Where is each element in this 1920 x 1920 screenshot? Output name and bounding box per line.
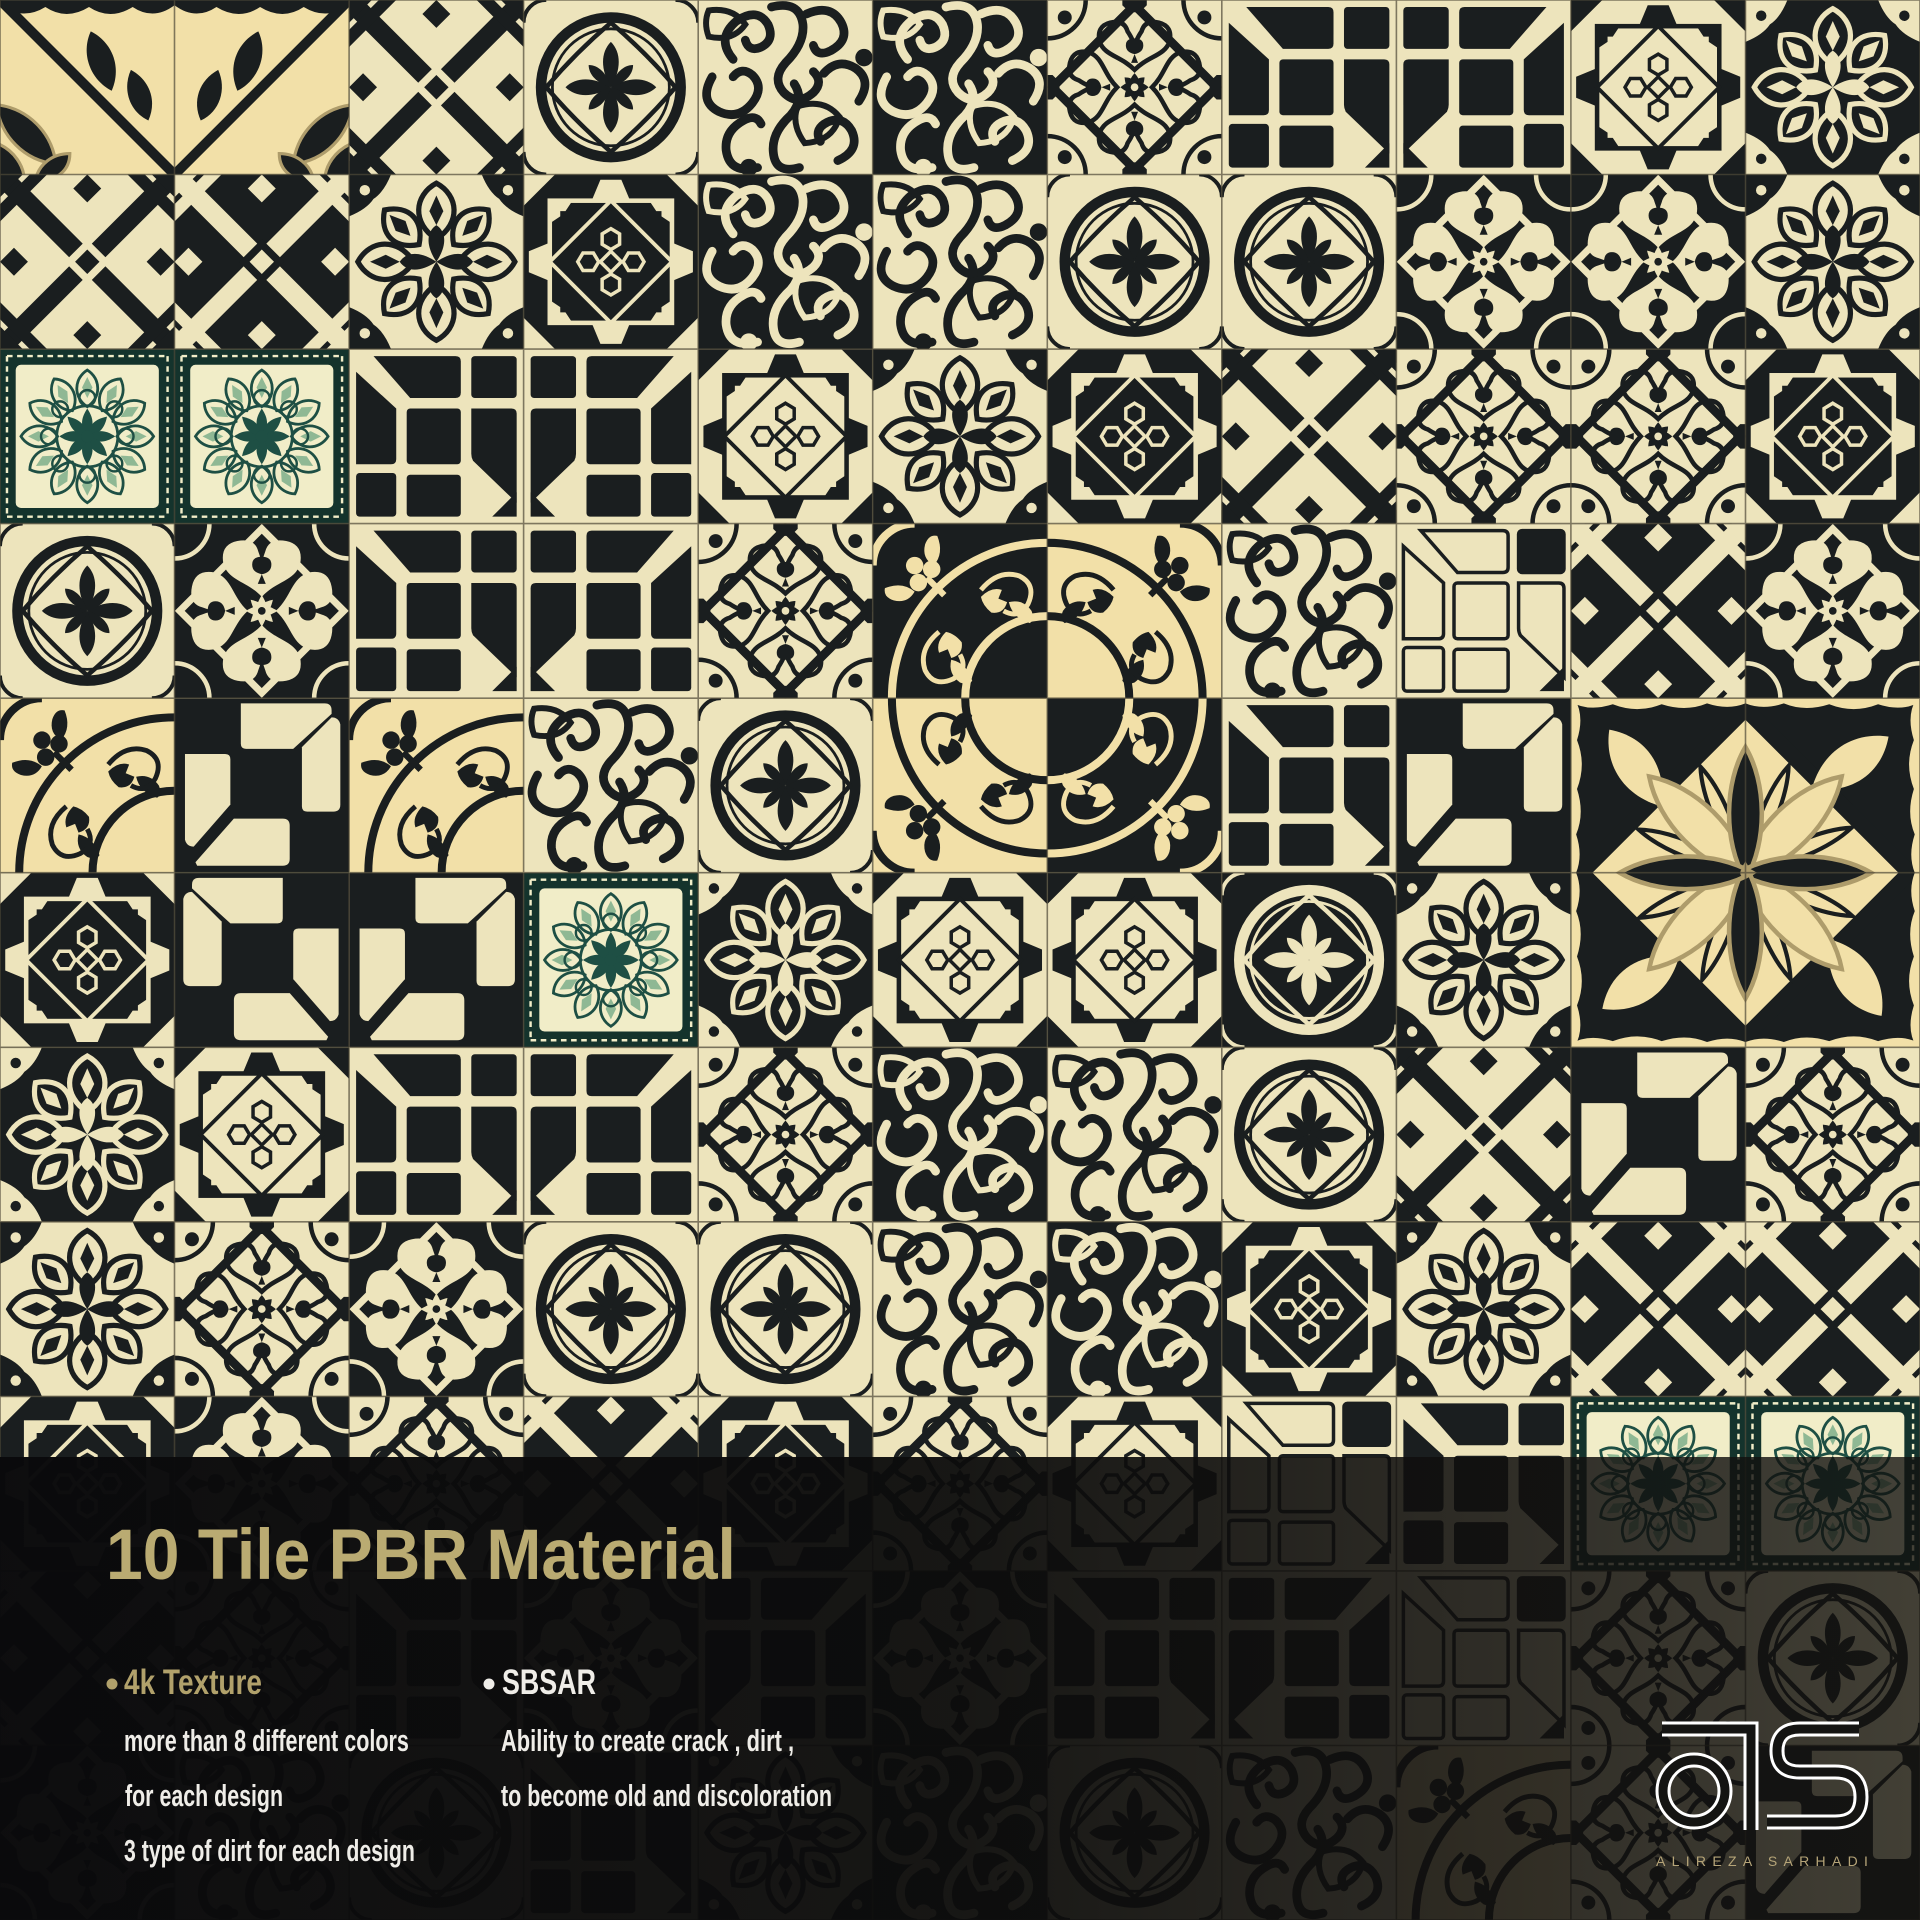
svg-text:10 Tile PBR Material: 10 Tile PBR Material (106, 1515, 736, 1595)
svg-text:SBSAR: SBSAR (502, 1663, 596, 1702)
svg-text:4k Texture: 4k Texture (124, 1662, 262, 1702)
svg-text:Ability to create crack , dirt: Ability to create crack , dirt , (501, 1723, 794, 1758)
svg-text:to become old and discoloratio: to become old and discoloration (501, 1778, 832, 1813)
svg-text:more than 8 different colors: more than 8 different colors (124, 1723, 409, 1758)
svg-text:ALIREZA SARHADI: ALIREZA SARHADI (1656, 1853, 1874, 1869)
svg-text:3 type of dirt for each design: 3 type of dirt for each design (124, 1833, 415, 1868)
svg-text:for each design: for each design (125, 1778, 283, 1813)
